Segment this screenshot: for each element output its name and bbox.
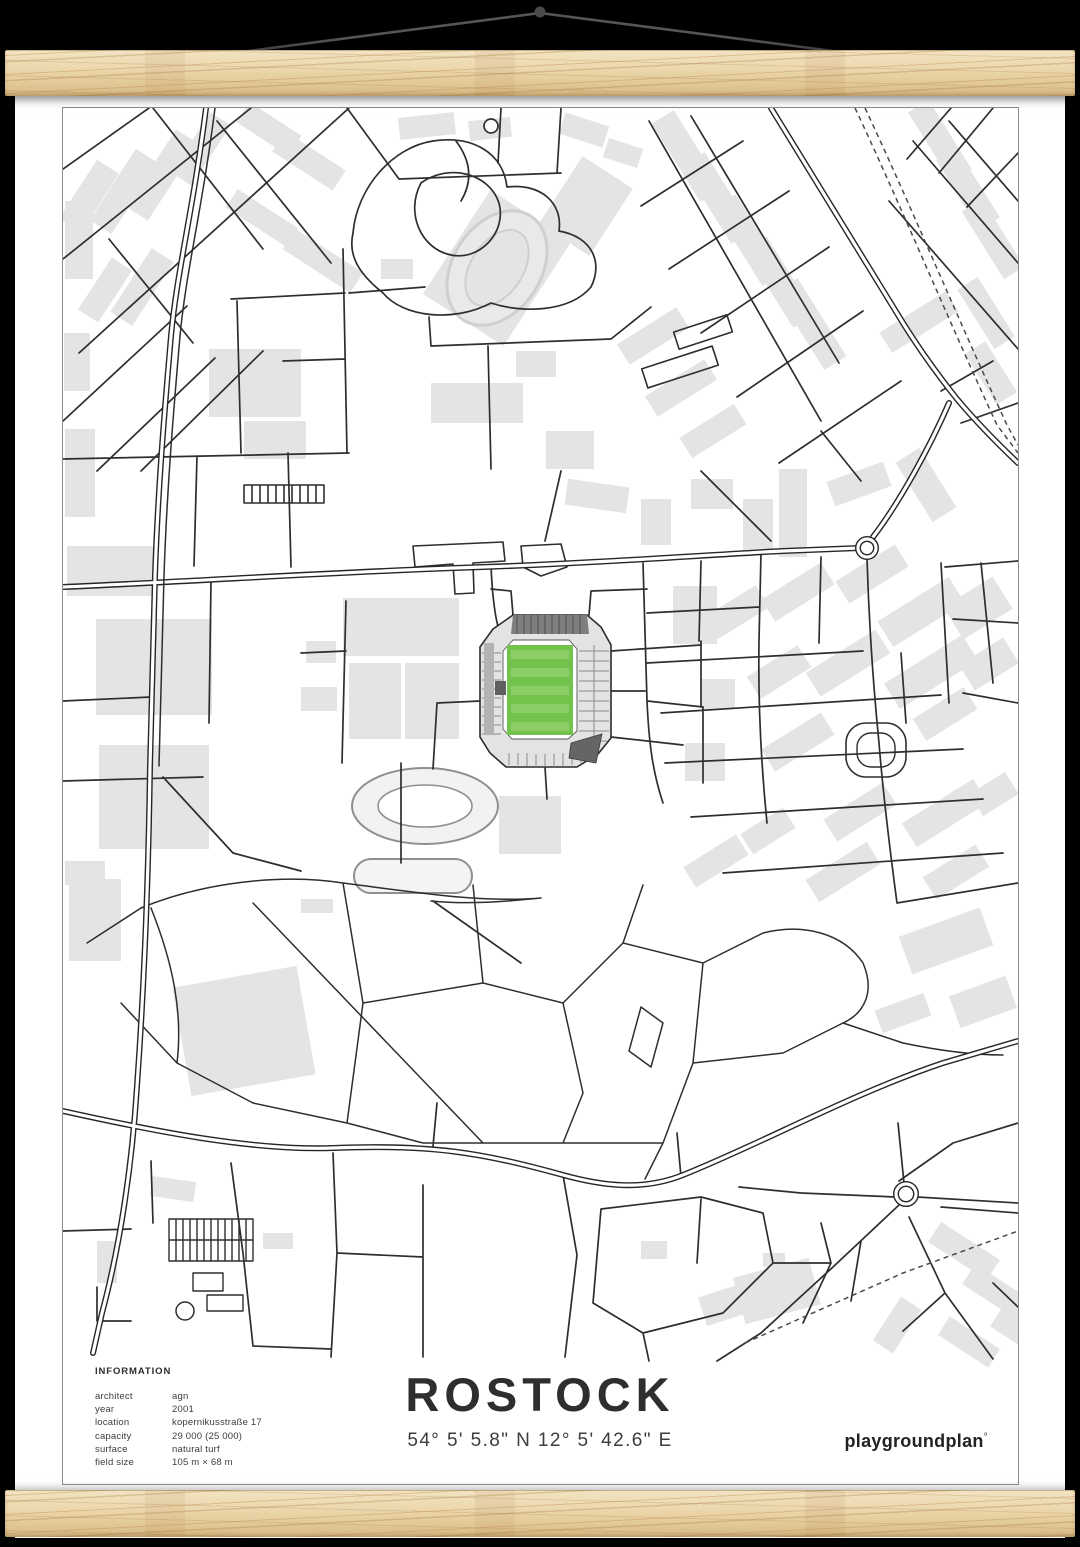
stadium-gate-block bbox=[495, 681, 506, 695]
map-poster: INFORMATION architect agn year 2001 loca… bbox=[15, 50, 1065, 1538]
wooden-rail-top bbox=[5, 50, 1075, 96]
info-value: 105 m × 68 m bbox=[172, 1456, 262, 1469]
info-label: field size bbox=[95, 1456, 172, 1469]
brand-logo: playgroundplan° bbox=[844, 1431, 988, 1452]
stadium-north-stand bbox=[511, 615, 589, 634]
stadium-west-strip bbox=[484, 643, 494, 735]
rostock-street-map bbox=[63, 108, 1018, 1484]
poster-mockup-scene: INFORMATION architect agn year 2001 loca… bbox=[0, 0, 1080, 1547]
hanger-pin-icon bbox=[535, 7, 546, 18]
stadium bbox=[480, 615, 611, 767]
info-row-field-size: field size 105 m × 68 m bbox=[95, 1456, 262, 1469]
page-title: ROSTOCK bbox=[15, 1370, 1065, 1419]
brand-name: playgroundplan bbox=[844, 1431, 983, 1451]
brand-mark: ° bbox=[984, 1432, 988, 1443]
map-frame bbox=[62, 107, 1019, 1485]
wooden-rail-bottom bbox=[5, 1490, 1075, 1537]
